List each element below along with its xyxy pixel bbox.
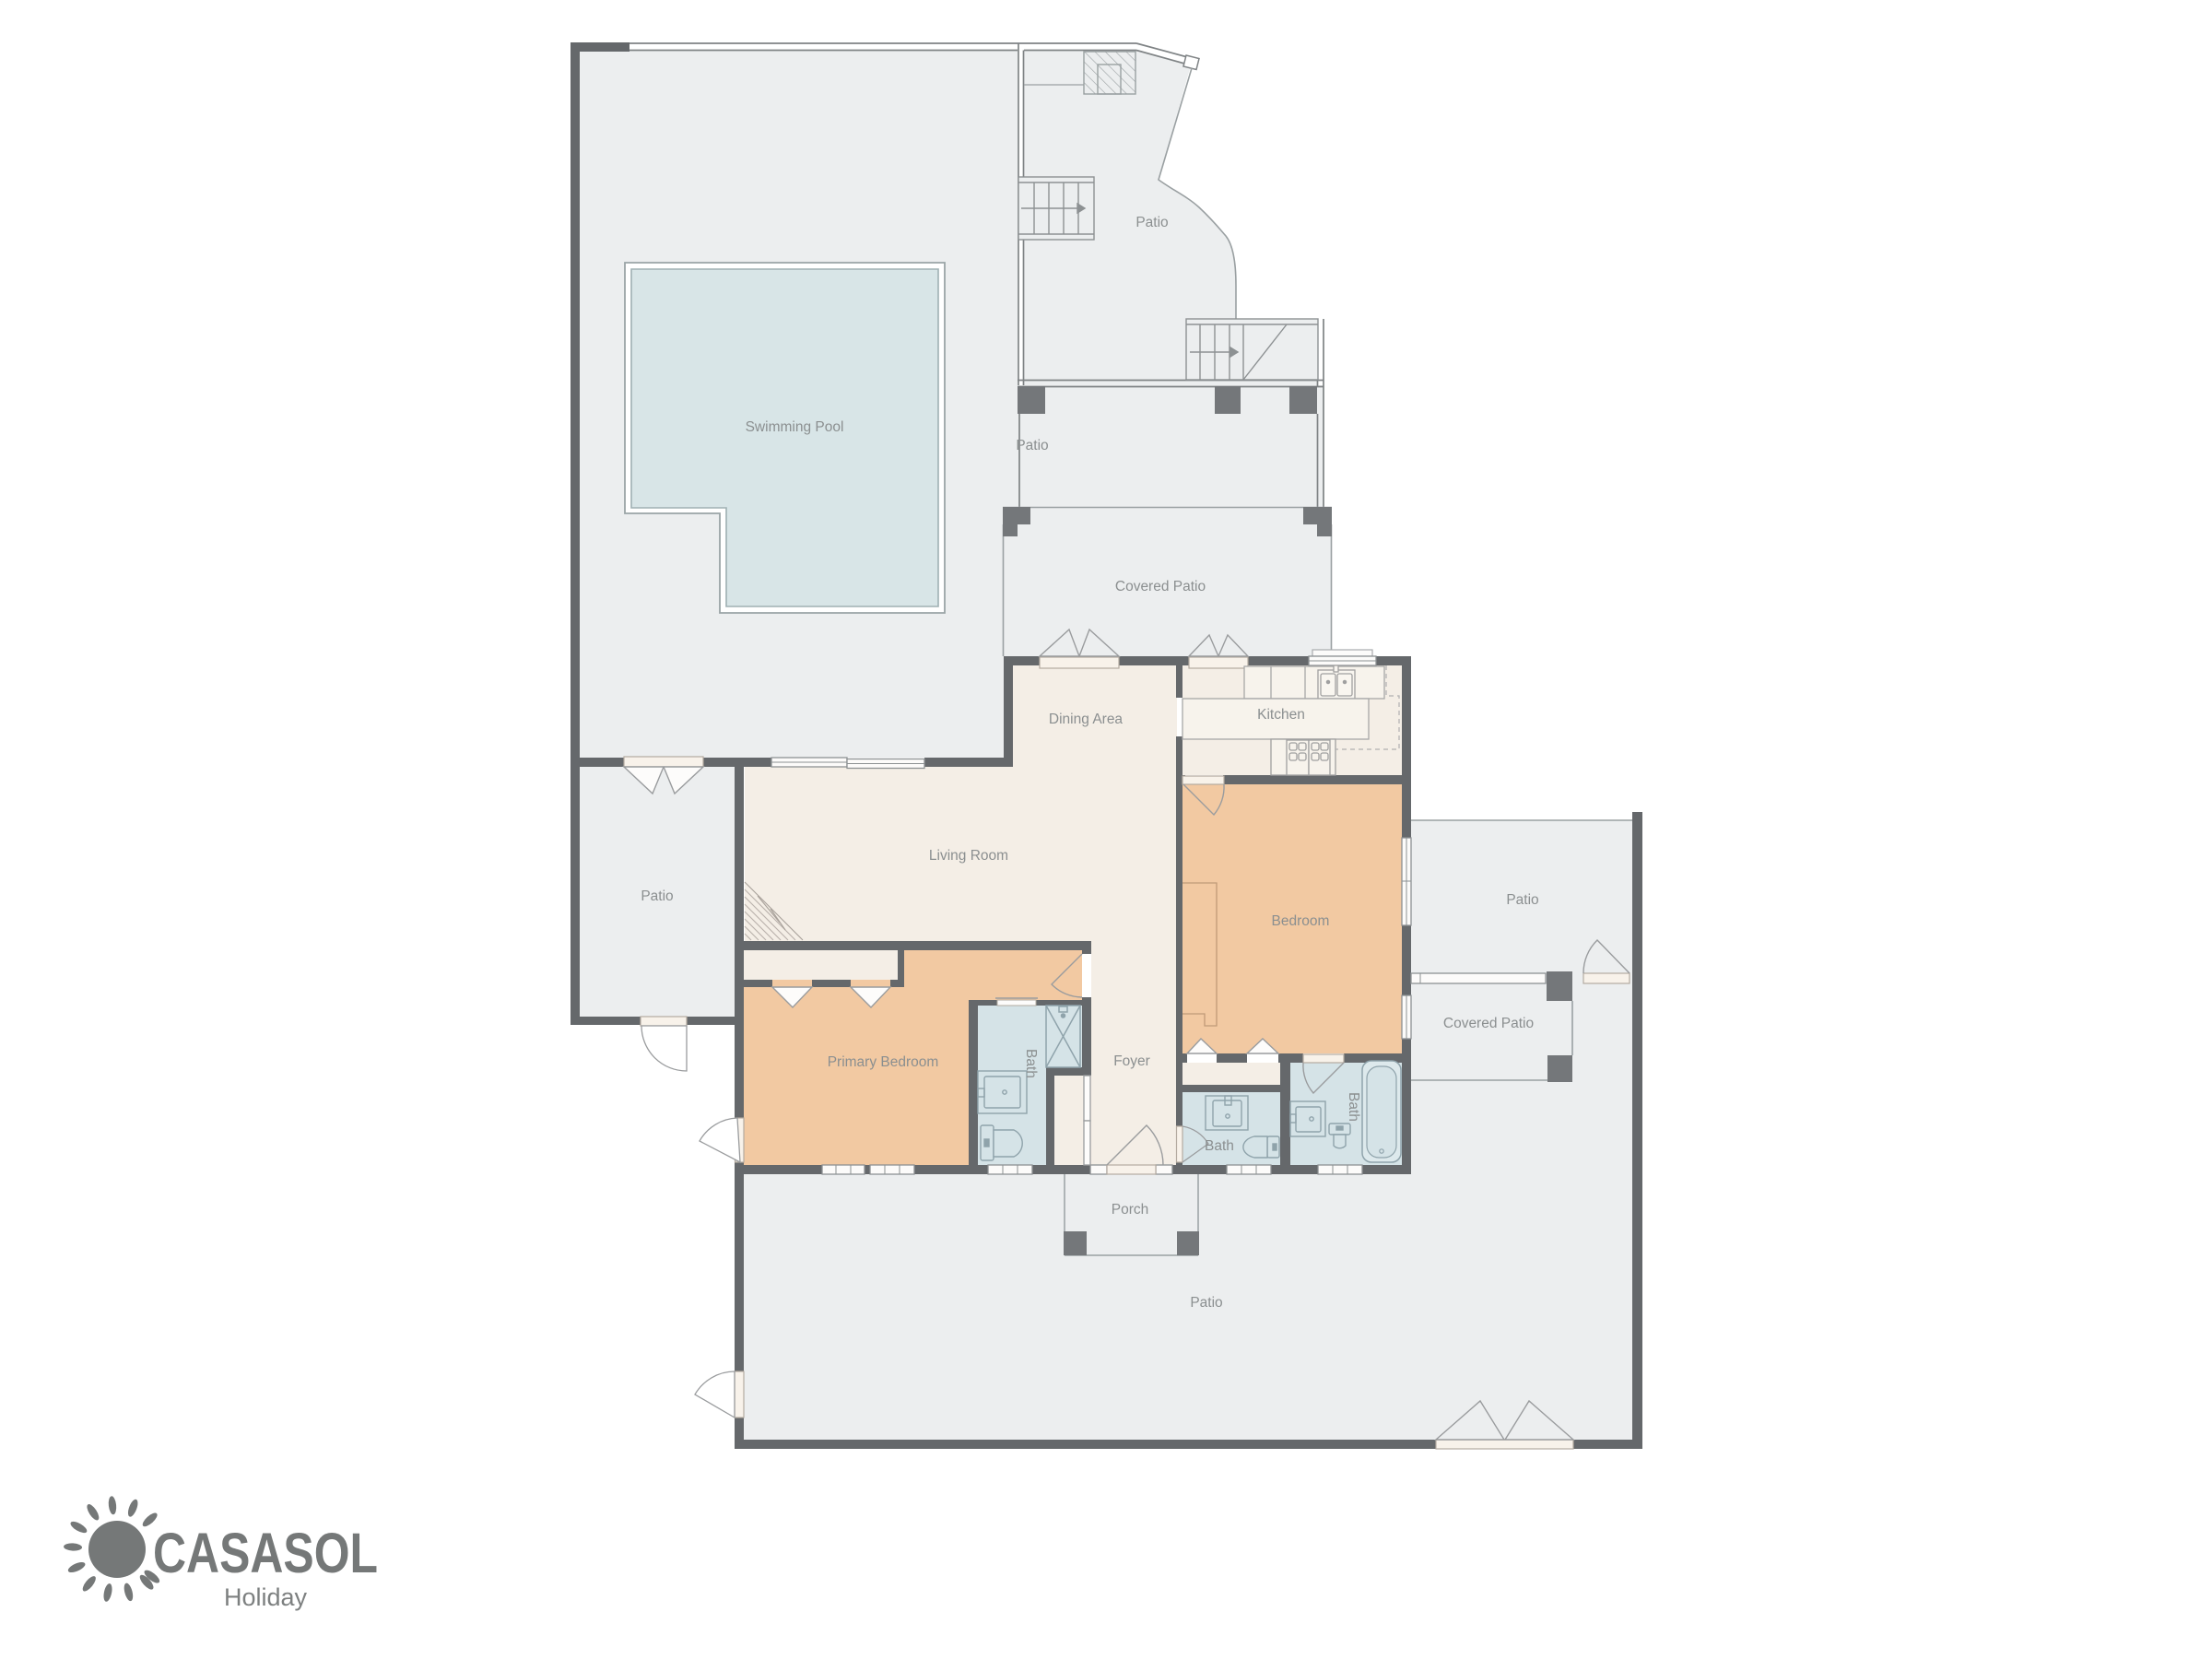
svg-text:Primary Bedroom: Primary Bedroom	[828, 1054, 939, 1070]
svg-text:CASASOL: CASASOL	[153, 1522, 378, 1584]
svg-text:Foyer: Foyer	[1113, 1053, 1150, 1069]
svg-text:Patio: Patio	[1506, 892, 1538, 908]
svg-text:Bath: Bath	[1205, 1138, 1234, 1154]
svg-text:Porch: Porch	[1112, 1202, 1149, 1218]
svg-text:Patio: Patio	[641, 888, 673, 904]
svg-text:Dining Area: Dining Area	[1049, 712, 1124, 727]
svg-text:Living Room: Living Room	[929, 848, 1008, 864]
svg-text:Covered Patio: Covered Patio	[1443, 1016, 1534, 1031]
svg-text:Bath: Bath	[1346, 1092, 1361, 1122]
svg-text:Patio: Patio	[1135, 215, 1168, 230]
svg-text:Patio: Patio	[1016, 438, 1048, 453]
svg-text:Covered Patio: Covered Patio	[1115, 579, 1206, 594]
svg-text:Bedroom: Bedroom	[1272, 913, 1330, 929]
svg-text:Swimming Pool: Swimming Pool	[746, 419, 844, 435]
svg-text:Patio: Patio	[1190, 1295, 1222, 1311]
svg-text:Kitchen: Kitchen	[1257, 707, 1305, 723]
svg-text:Holiday: Holiday	[224, 1583, 308, 1611]
svg-text:Bath: Bath	[1023, 1049, 1039, 1078]
